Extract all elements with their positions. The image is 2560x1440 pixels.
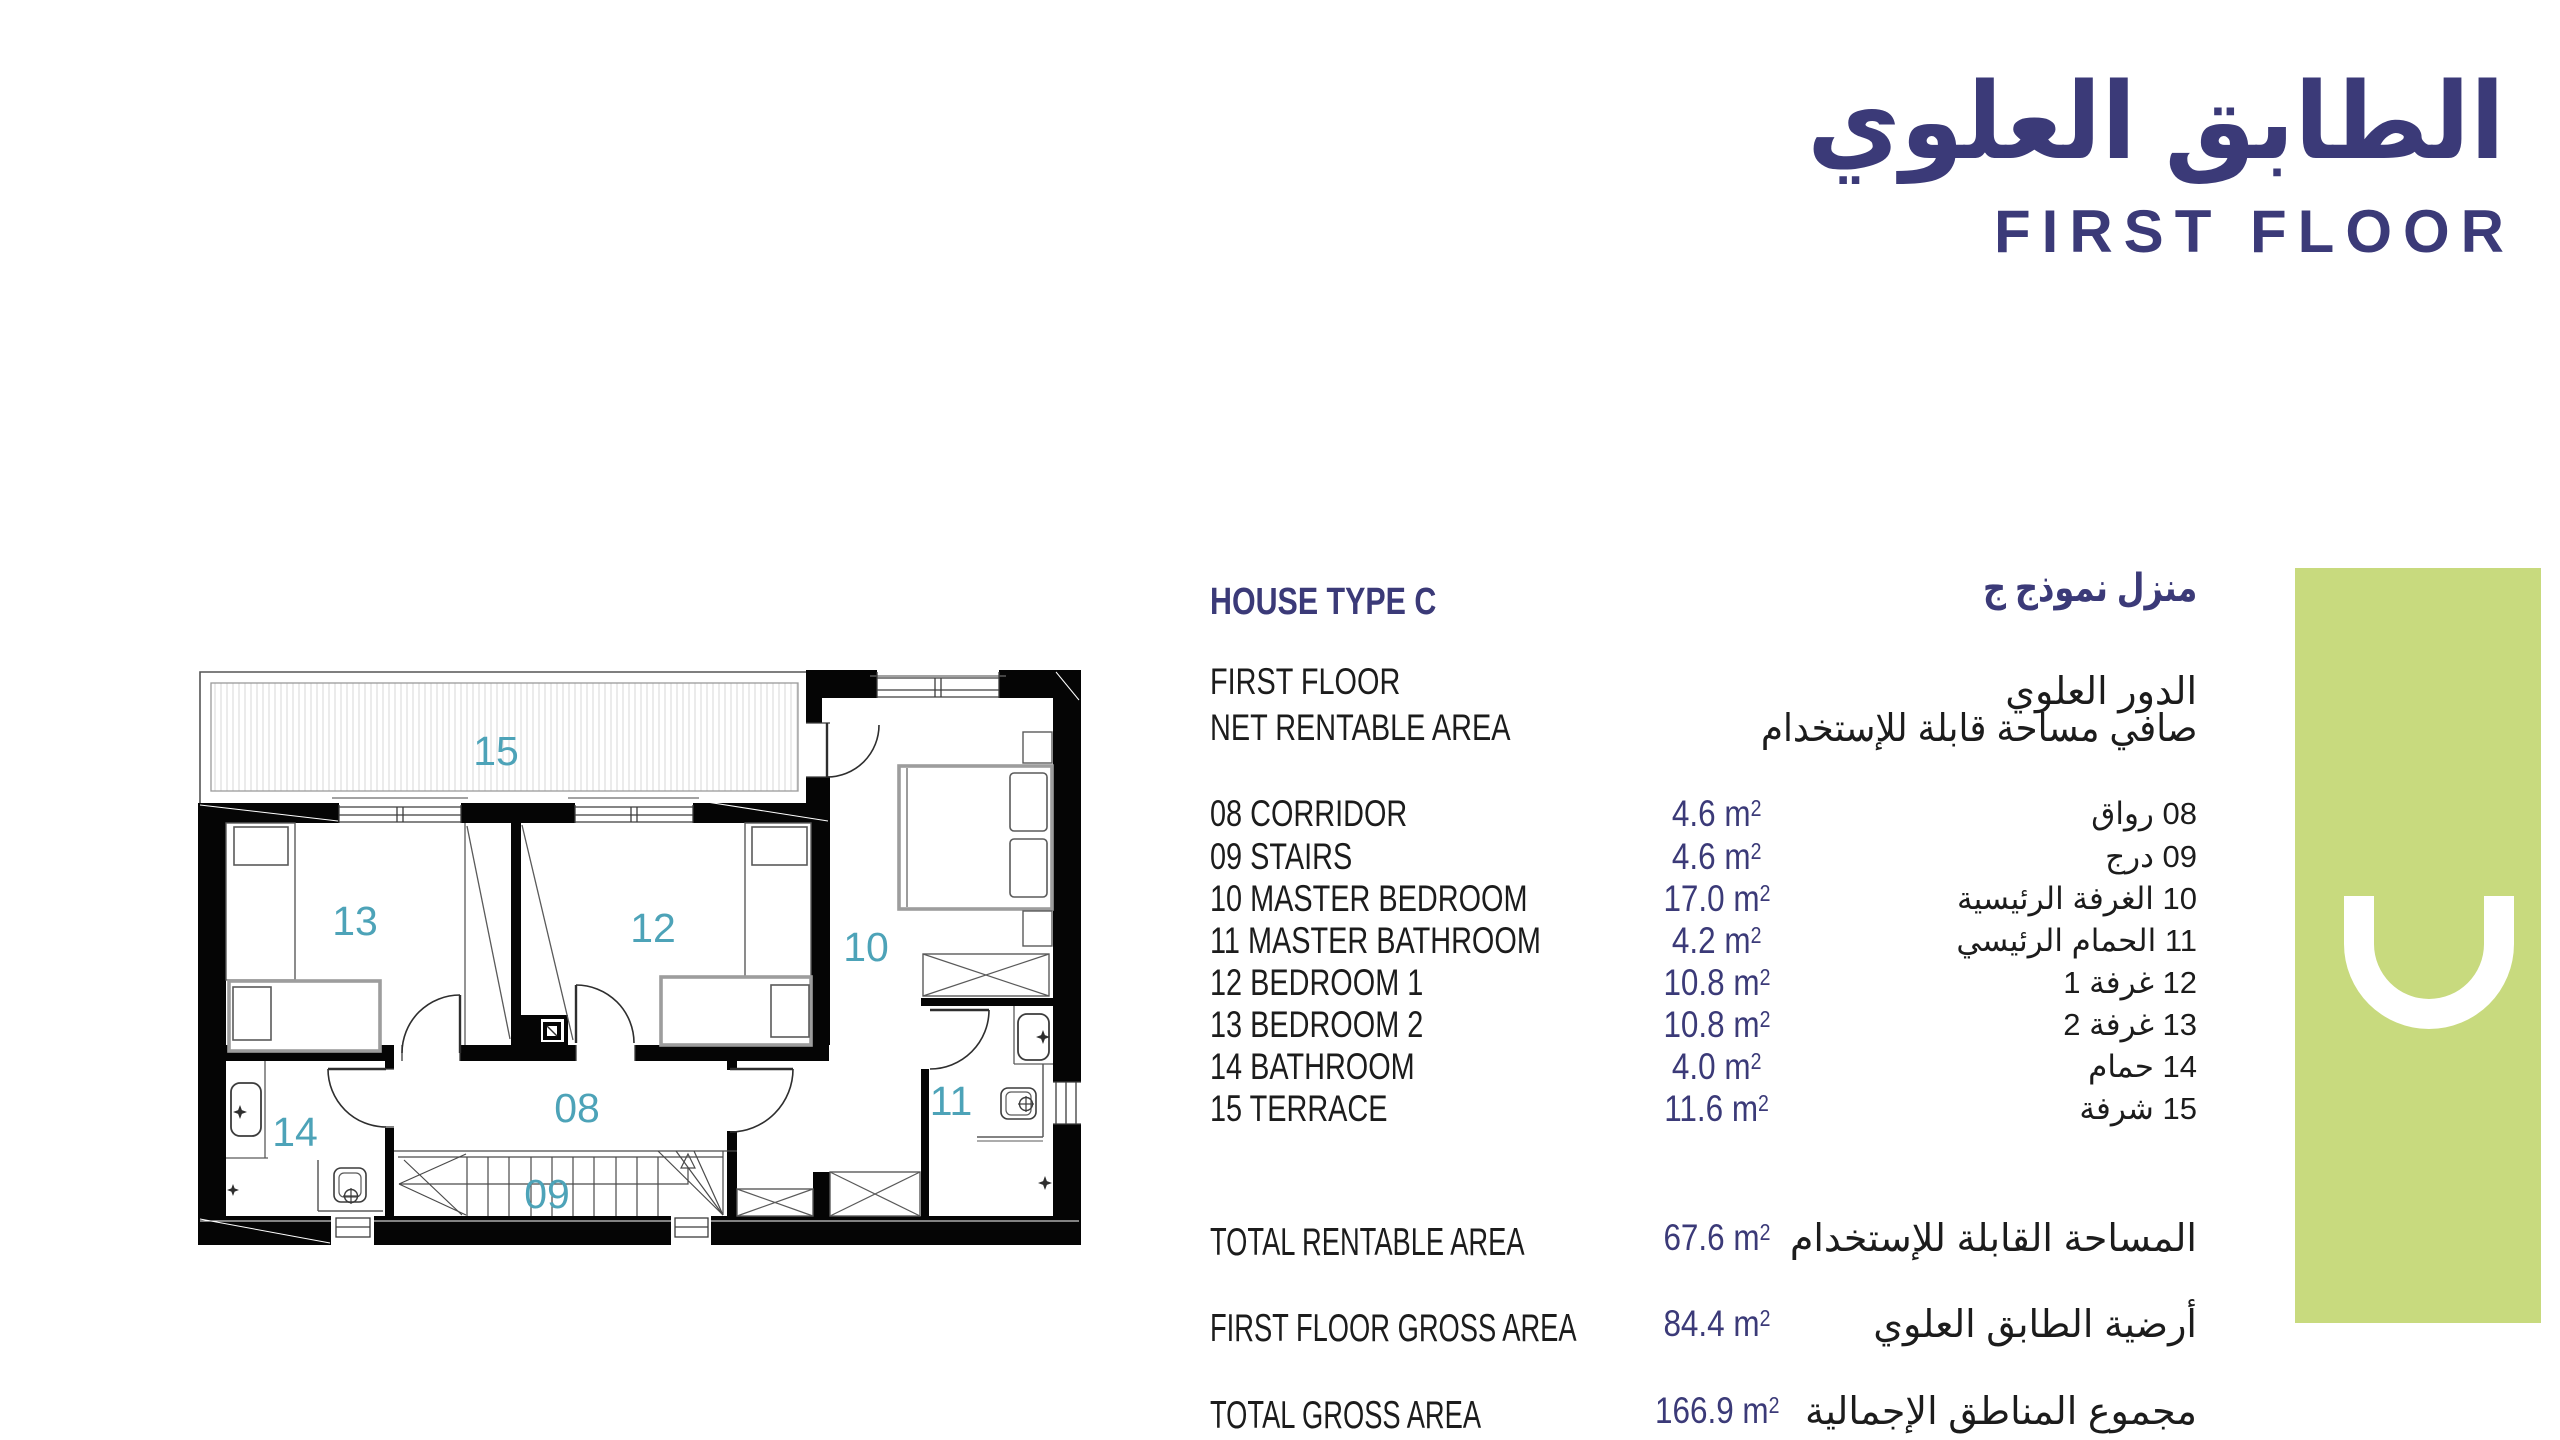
svg-text:14: 14 bbox=[272, 1109, 318, 1155]
svg-text:12: 12 bbox=[630, 905, 676, 951]
svg-text:08: 08 bbox=[554, 1085, 600, 1131]
svg-text:15: 15 bbox=[473, 728, 519, 774]
svg-text:13: 13 bbox=[332, 898, 378, 944]
svg-text:10: 10 bbox=[843, 924, 889, 970]
svg-text:11: 11 bbox=[930, 1078, 973, 1124]
svg-text:09: 09 bbox=[524, 1171, 570, 1217]
